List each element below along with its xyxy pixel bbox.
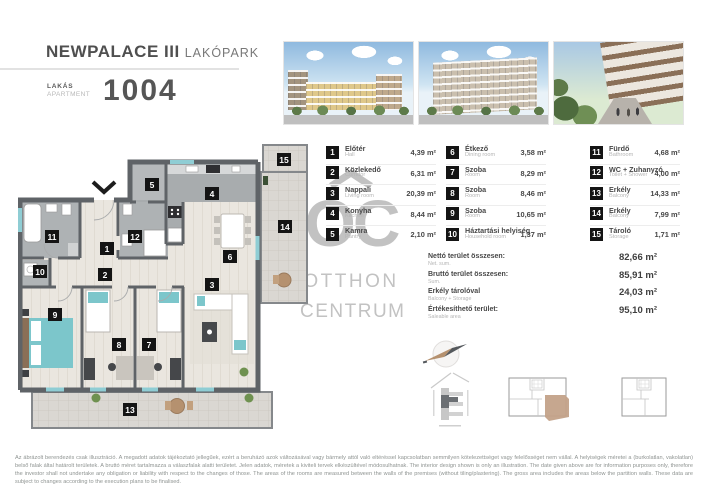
room-name: ElőtérHall bbox=[345, 144, 365, 158]
room-name: NappaliLiving room bbox=[345, 185, 374, 199]
room-row: 13ErkélyBalcony14,33 m² bbox=[590, 184, 680, 205]
stove bbox=[206, 165, 220, 173]
chair bbox=[154, 363, 162, 371]
fridge bbox=[168, 228, 182, 242]
room-number-badge: 3 bbox=[326, 187, 339, 200]
floorplan-datasheet-page: NEWPALACE IIILAKÓPARK LAKÁS APARTMENT 10… bbox=[0, 0, 707, 500]
project-name: NEWPALACE III bbox=[46, 42, 180, 61]
plant bbox=[240, 368, 249, 377]
summary-value: 95,10 m² bbox=[619, 305, 657, 316]
area-summary: Nettó terület összesen:Net. sum.82,66 m²… bbox=[428, 253, 657, 323]
room-name-en: Hall bbox=[345, 153, 365, 159]
bedroom9-furniture bbox=[22, 309, 73, 377]
room-number-badge: 14 bbox=[590, 207, 603, 220]
oven bbox=[168, 206, 182, 218]
wardrobe bbox=[170, 358, 181, 380]
room-area-value: 4,39 m² bbox=[411, 148, 436, 157]
room-area-value: 7,99 m² bbox=[655, 210, 680, 219]
room-name-en: Bathroom bbox=[609, 153, 633, 159]
dining-table bbox=[221, 214, 244, 248]
sink bbox=[46, 204, 57, 212]
room-number-badge: 7 bbox=[446, 166, 459, 179]
balcony-14 bbox=[261, 172, 307, 303]
room-row: 8SzobaRoom8,46 m² bbox=[446, 184, 546, 205]
road-art bbox=[419, 115, 548, 124]
project-suffix: LAKÓPARK bbox=[185, 46, 259, 60]
building-art bbox=[288, 70, 308, 110]
plant bbox=[263, 176, 268, 185]
watermark-line2: CENTRUM bbox=[300, 302, 402, 321]
plan-room-badge-number: 15 bbox=[279, 155, 289, 165]
room-number-badge: 1 bbox=[326, 146, 339, 159]
pillow bbox=[234, 340, 246, 350]
dining-furniture bbox=[214, 214, 251, 248]
balcony-table bbox=[277, 273, 291, 287]
room-row: 5KamraPantry2,10 m² bbox=[326, 225, 436, 246]
plant bbox=[92, 394, 101, 403]
garden-art bbox=[554, 72, 610, 124]
room-name-en: Pantry bbox=[345, 235, 367, 241]
room-area-value: 2,10 m² bbox=[411, 230, 436, 239]
plan-room-badge-number: 7 bbox=[147, 340, 152, 350]
street-lines bbox=[431, 373, 469, 388]
balcony-table bbox=[170, 399, 185, 414]
people-art bbox=[612, 106, 642, 118]
sink bbox=[186, 166, 198, 172]
room-list-column-3: 11FürdőBathroom4,68 m²12WC + ZuhanyzóToi… bbox=[590, 144, 680, 246]
header-divider bbox=[0, 68, 239, 70]
highlighted-building bbox=[441, 395, 449, 408]
room-area-value: 1,37 m² bbox=[521, 230, 546, 239]
toilet bbox=[62, 204, 71, 215]
room-area-value: 10,65 m² bbox=[516, 210, 546, 219]
floor-position-diagram-plain bbox=[621, 377, 669, 423]
room-name: KamraPantry bbox=[345, 226, 367, 240]
room-row: 3NappaliLiving room20,39 m² bbox=[326, 184, 436, 205]
plan-room-badge-number: 2 bbox=[103, 270, 108, 280]
room-row: 6ÉtkezőDining room3,58 m² bbox=[446, 144, 546, 164]
plan-room-badge-number: 14 bbox=[280, 222, 290, 232]
plan-room-badge-number: 11 bbox=[48, 232, 57, 242]
watermark-line1: OTTHON bbox=[300, 272, 402, 291]
room-name: KonyhaKitchen bbox=[345, 206, 371, 220]
room-name: TárolóStorage bbox=[609, 226, 631, 240]
room-name-en: Dining room bbox=[465, 153, 495, 159]
room-number-badge: 11 bbox=[590, 146, 603, 159]
apartment-label-hu: LAKÁS bbox=[47, 83, 90, 91]
room-name: SzobaRoom bbox=[465, 165, 486, 179]
plan-room-badge-number: 6 bbox=[228, 252, 233, 262]
room-row: 4KonyhaKitchen8,44 m² bbox=[326, 205, 436, 226]
room-name-en: Corridor bbox=[345, 173, 381, 179]
bed-headboard bbox=[22, 318, 29, 368]
plan-room-badge-number: 1 bbox=[105, 244, 110, 254]
desk bbox=[116, 356, 133, 380]
site-location-map bbox=[427, 368, 483, 432]
bathtub bbox=[24, 204, 41, 242]
plan-room-badge-number: 12 bbox=[130, 232, 140, 242]
room-row: 12WC + ZuhanyzóToilet + Shower4,00 m² bbox=[590, 164, 680, 185]
room-row: 14ErkélyBalcony7,99 m² bbox=[590, 205, 680, 226]
plan-room-badge-number: 13 bbox=[125, 405, 135, 415]
plan-room-badge-number: 8 bbox=[117, 340, 122, 350]
wardrobe bbox=[84, 358, 95, 380]
room-list-column-1: 1ElőtérHall4,39 m²2KözlekedőCorridor6,31… bbox=[326, 144, 436, 246]
room-row: 15TárolóStorage1,71 m² bbox=[590, 225, 680, 246]
room-name: SzobaRoom bbox=[465, 185, 486, 199]
building-photo-2 bbox=[418, 41, 549, 125]
room-area-value: 4,00 m² bbox=[655, 169, 680, 178]
apartment-highlight bbox=[545, 395, 569, 421]
pillow bbox=[197, 296, 205, 306]
plan-room-badge-number: 4 bbox=[210, 189, 215, 199]
room-area-value: 8,29 m² bbox=[521, 169, 546, 178]
plan-room-badge-number: 5 bbox=[150, 180, 155, 190]
toilet bbox=[123, 204, 132, 215]
page-title: NEWPALACE IIILAKÓPARK bbox=[46, 42, 259, 62]
room-number-badge: 6 bbox=[446, 146, 459, 159]
room-name-en: Balcony bbox=[609, 194, 631, 200]
room-area-value: 8,44 m² bbox=[411, 210, 436, 219]
room-row: 10Háztartási helyiségHousehold room1,37 … bbox=[446, 225, 546, 246]
floor-position-diagram-highlighted bbox=[508, 377, 572, 423]
room-name-en: Living room bbox=[345, 194, 374, 200]
room-name: ÉtkezőDining room bbox=[465, 144, 495, 158]
room-name: KözlekedőCorridor bbox=[345, 165, 381, 179]
wc-shower-area bbox=[120, 202, 168, 258]
apartment-label-en: APARTMENT bbox=[47, 91, 90, 99]
room-row: 7SzobaRoom8,29 m² bbox=[446, 164, 546, 185]
balcony-13 bbox=[32, 392, 272, 428]
entrance-arrow-icon bbox=[93, 182, 115, 192]
room-number-badge: 4 bbox=[326, 207, 339, 220]
room-name: SzobaRoom bbox=[465, 206, 486, 220]
summary-row: Nettó terület összesen:Net. sum.82,66 m² bbox=[428, 253, 657, 271]
room-area-value: 1,71 m² bbox=[655, 230, 680, 239]
summary-row: Erkély tárolóvalBalcony + Storage24,03 m… bbox=[428, 288, 657, 306]
room-row: 2KözlekedőCorridor6,31 m² bbox=[326, 164, 436, 185]
room-name: ErkélyBalcony bbox=[609, 206, 631, 220]
road-art bbox=[284, 115, 413, 124]
room-name-en: Kitchen bbox=[345, 214, 371, 220]
building-photo-1 bbox=[283, 41, 414, 125]
summary-row: Értékesíthető terület:Saleable area95,10… bbox=[428, 306, 657, 324]
room-name-en: Storage bbox=[609, 235, 631, 241]
plan-room-badge-number: 3 bbox=[210, 280, 215, 290]
room-area-value: 6,31 m² bbox=[411, 169, 436, 178]
apartment-number: 1004 bbox=[103, 74, 178, 108]
plant bbox=[245, 394, 254, 403]
room-number-badge: 13 bbox=[590, 187, 603, 200]
legal-disclaimer: Az ábrázolt berendezés csak illusztráció… bbox=[15, 454, 693, 487]
summary-value: 24,03 m² bbox=[619, 287, 657, 298]
room-name-en: Room bbox=[465, 194, 486, 200]
room-number-badge: 5 bbox=[326, 228, 339, 241]
summary-row: Bruttó terület összesen:Sum.85,91 m² bbox=[428, 271, 657, 289]
room-area-value: 3,58 m² bbox=[521, 148, 546, 157]
plan-room-badge-number: 10 bbox=[35, 267, 45, 277]
room-number-badge: 9 bbox=[446, 207, 459, 220]
room-number-badge: 15 bbox=[590, 228, 603, 241]
apartment-floorplan: 123456789101112131415 bbox=[18, 140, 310, 430]
room-name: ErkélyBalcony bbox=[609, 185, 631, 199]
chair bbox=[108, 363, 116, 371]
room-number-badge: 8 bbox=[446, 187, 459, 200]
room-number-badge: 12 bbox=[590, 166, 603, 179]
room-area-value: 4,68 m² bbox=[655, 148, 680, 157]
living-room-furniture bbox=[190, 290, 254, 377]
room-name-en: Balcony bbox=[609, 214, 631, 220]
room-area-value: 8,46 m² bbox=[521, 189, 546, 198]
shower bbox=[144, 230, 166, 256]
summary-value: 82,66 m² bbox=[619, 252, 657, 263]
plan-room-badge-number: 9 bbox=[53, 310, 58, 320]
room-row: 1ElőtérHall4,39 m² bbox=[326, 144, 436, 164]
room-number-badge: 2 bbox=[326, 166, 339, 179]
room-number-badge: 10 bbox=[446, 228, 459, 241]
room-area-value: 14,33 m² bbox=[650, 189, 680, 198]
room-area-value: 20,39 m² bbox=[406, 189, 436, 198]
apartment-label: LAKÁS APARTMENT bbox=[47, 83, 90, 99]
room-row: 11FürdőBathroom4,68 m² bbox=[590, 144, 680, 164]
room-list-column-2: 6ÉtkezőDining room3,58 m²7SzobaRoom8,29 … bbox=[446, 144, 546, 246]
summary-value: 85,91 m² bbox=[619, 270, 657, 281]
room-name-en: Room bbox=[465, 173, 486, 179]
desk bbox=[137, 356, 154, 380]
room-name: FürdőBathroom bbox=[609, 144, 633, 158]
building-photo-3 bbox=[553, 41, 684, 125]
room-name-en: Room bbox=[465, 214, 486, 220]
room-row: 9SzobaRoom10,65 m² bbox=[446, 205, 546, 226]
